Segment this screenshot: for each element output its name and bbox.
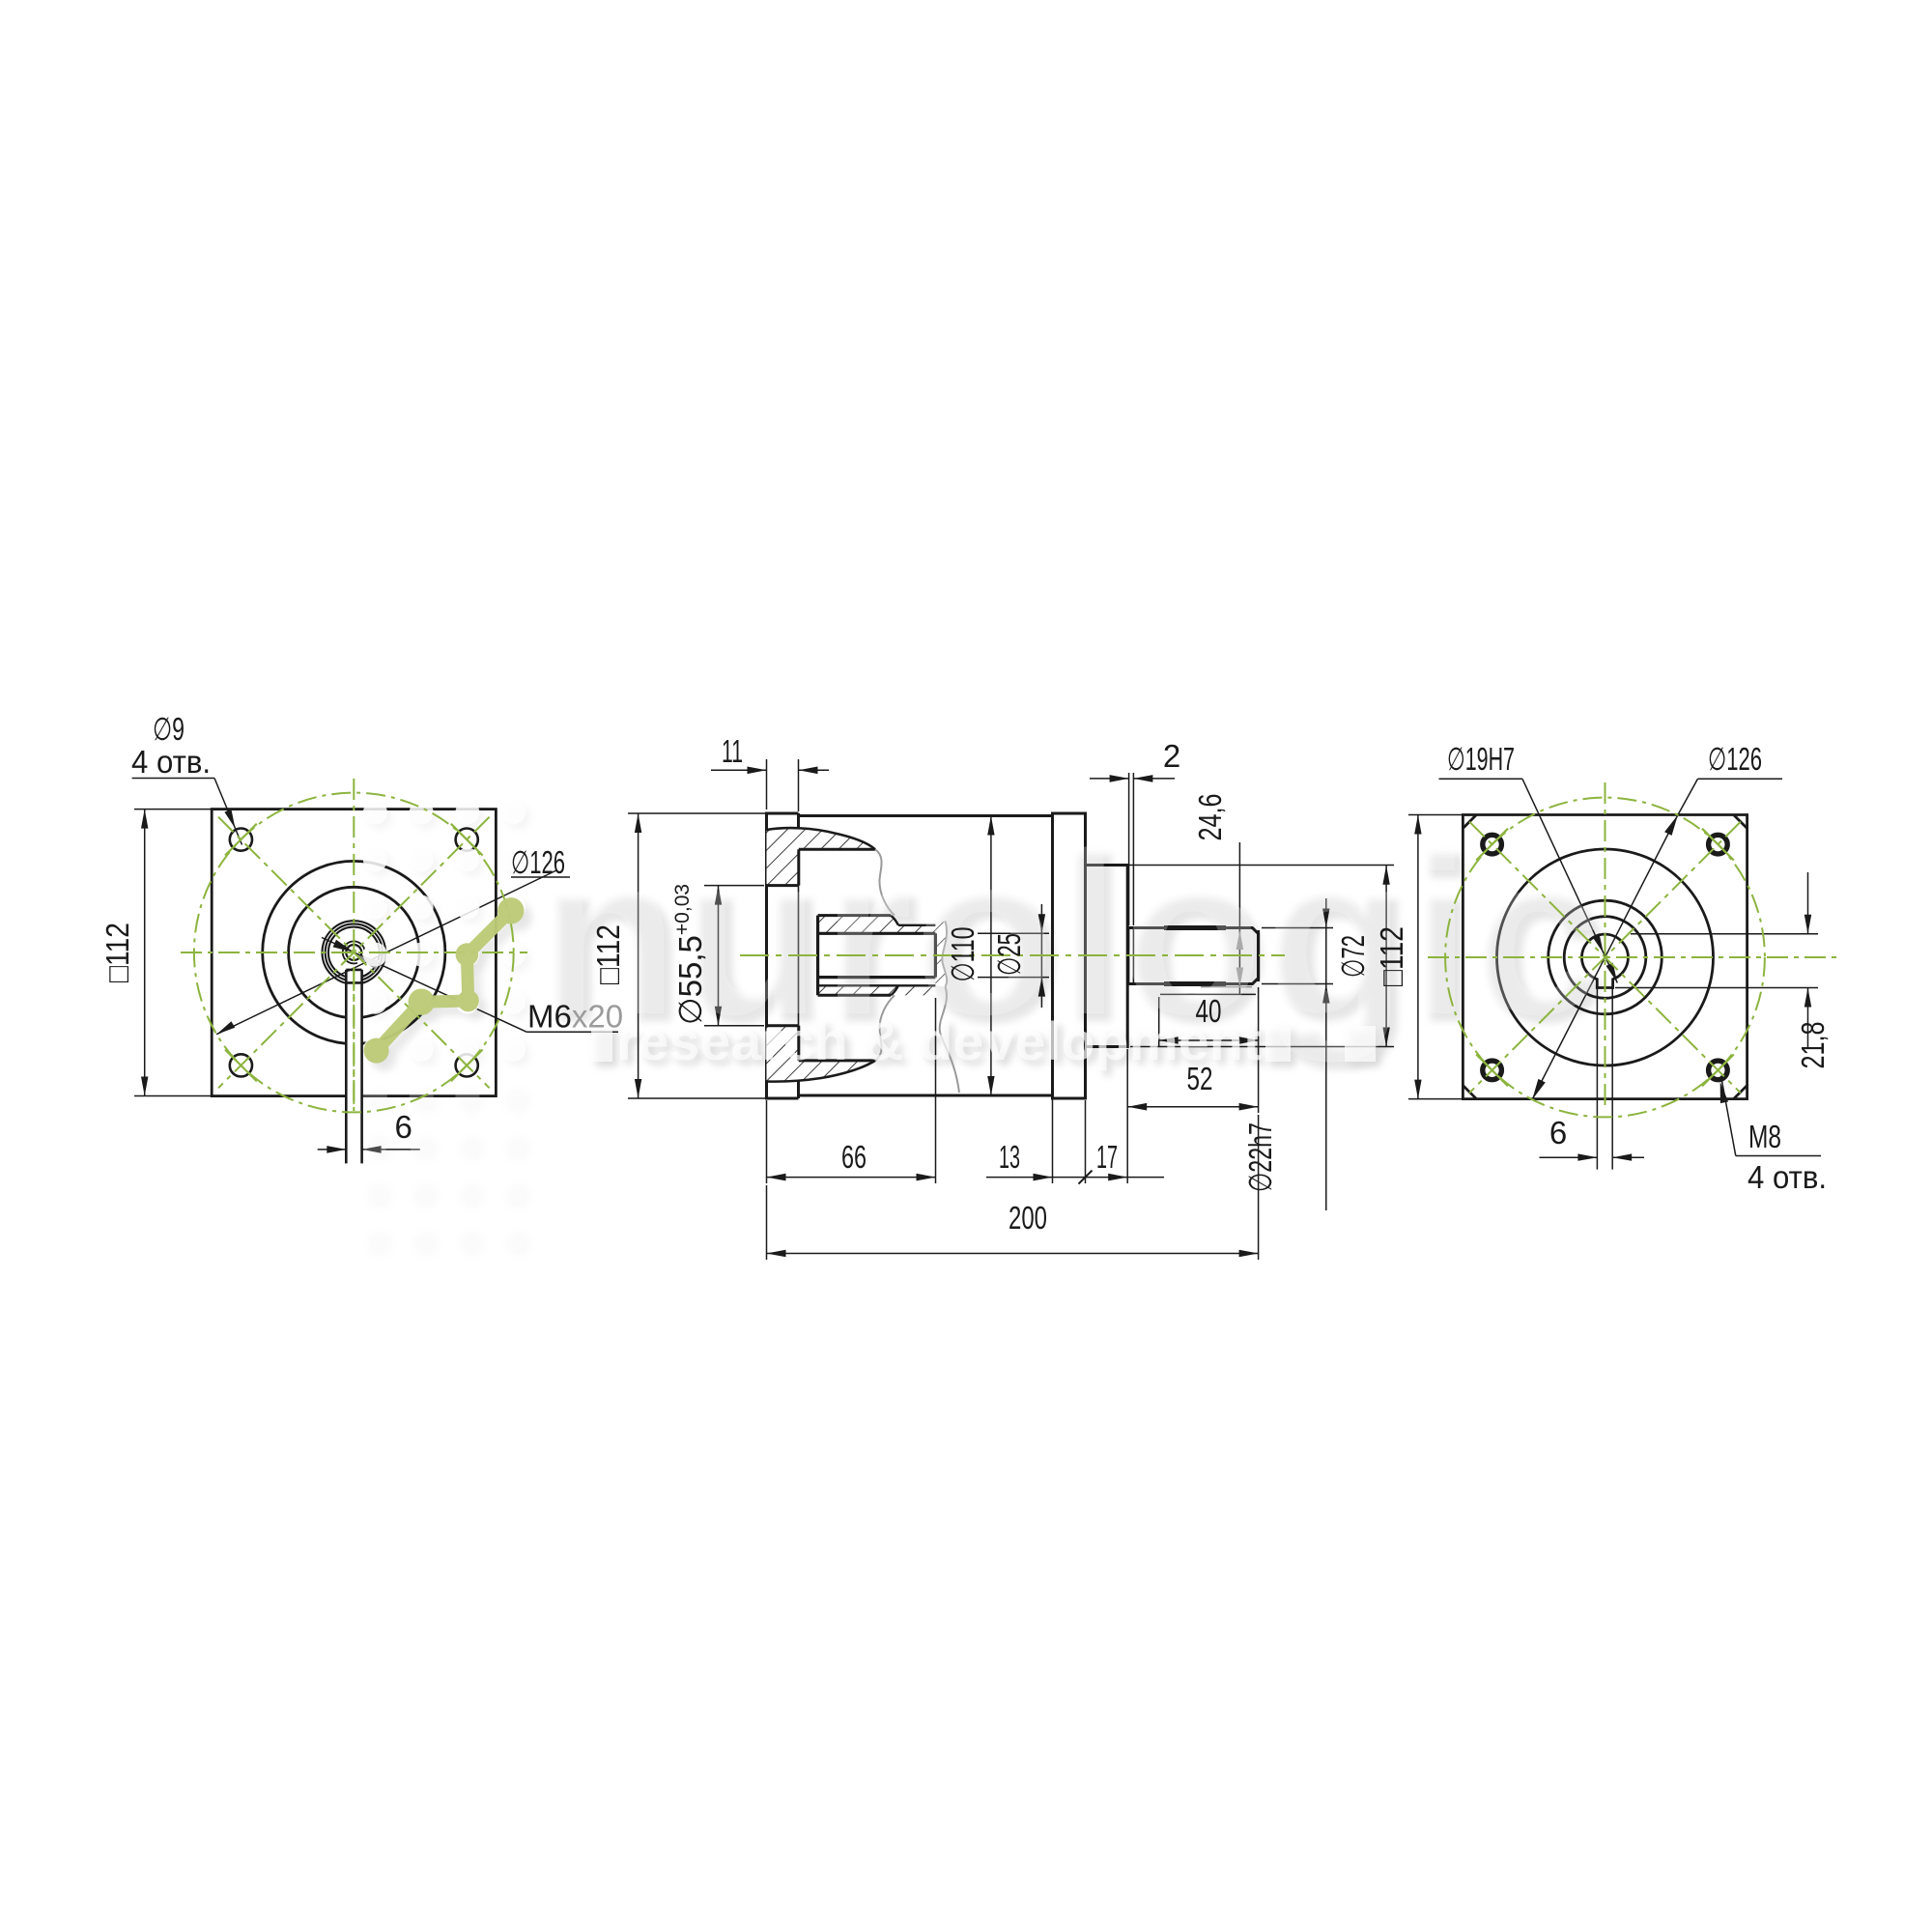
svg-text:M6x20: M6x20 bbox=[527, 999, 623, 1035]
svg-text:6: 6 bbox=[1549, 1115, 1567, 1151]
svg-text:∅19H7: ∅19H7 bbox=[1447, 741, 1515, 777]
svg-text:□112: □112 bbox=[99, 923, 135, 982]
svg-text:66: 66 bbox=[841, 1139, 867, 1175]
svg-text:∅126: ∅126 bbox=[1708, 741, 1762, 777]
svg-text:13: 13 bbox=[999, 1139, 1020, 1175]
svg-text:□112: □112 bbox=[1374, 926, 1409, 986]
svg-text:4 отв.: 4 отв. bbox=[1747, 1159, 1827, 1195]
svg-text:∅9: ∅9 bbox=[153, 711, 185, 747]
svg-text:200: 200 bbox=[1009, 1200, 1047, 1236]
svg-text:□112: □112 bbox=[590, 924, 626, 984]
svg-text:11: 11 bbox=[722, 733, 743, 769]
svg-text:24,6: 24,6 bbox=[1192, 794, 1228, 841]
svg-text:6: 6 bbox=[395, 1109, 412, 1145]
svg-text:∅22h7: ∅22h7 bbox=[1242, 1122, 1278, 1192]
svg-text:17: 17 bbox=[1096, 1139, 1118, 1175]
svg-text:4 отв.: 4 отв. bbox=[131, 744, 211, 780]
svg-text:research & development: research & development bbox=[616, 1010, 1262, 1071]
svg-text:21,8: 21,8 bbox=[1795, 1022, 1831, 1069]
svg-text:∅25: ∅25 bbox=[991, 933, 1027, 976]
svg-text:∅110: ∅110 bbox=[945, 927, 980, 982]
svg-text:40: 40 bbox=[1196, 993, 1222, 1029]
svg-text:M8: M8 bbox=[1748, 1119, 1781, 1154]
svg-text:∅126: ∅126 bbox=[511, 844, 565, 880]
svg-text:52: 52 bbox=[1187, 1061, 1213, 1096]
svg-text:2: 2 bbox=[1163, 738, 1180, 774]
svg-text:∅72: ∅72 bbox=[1335, 935, 1371, 978]
